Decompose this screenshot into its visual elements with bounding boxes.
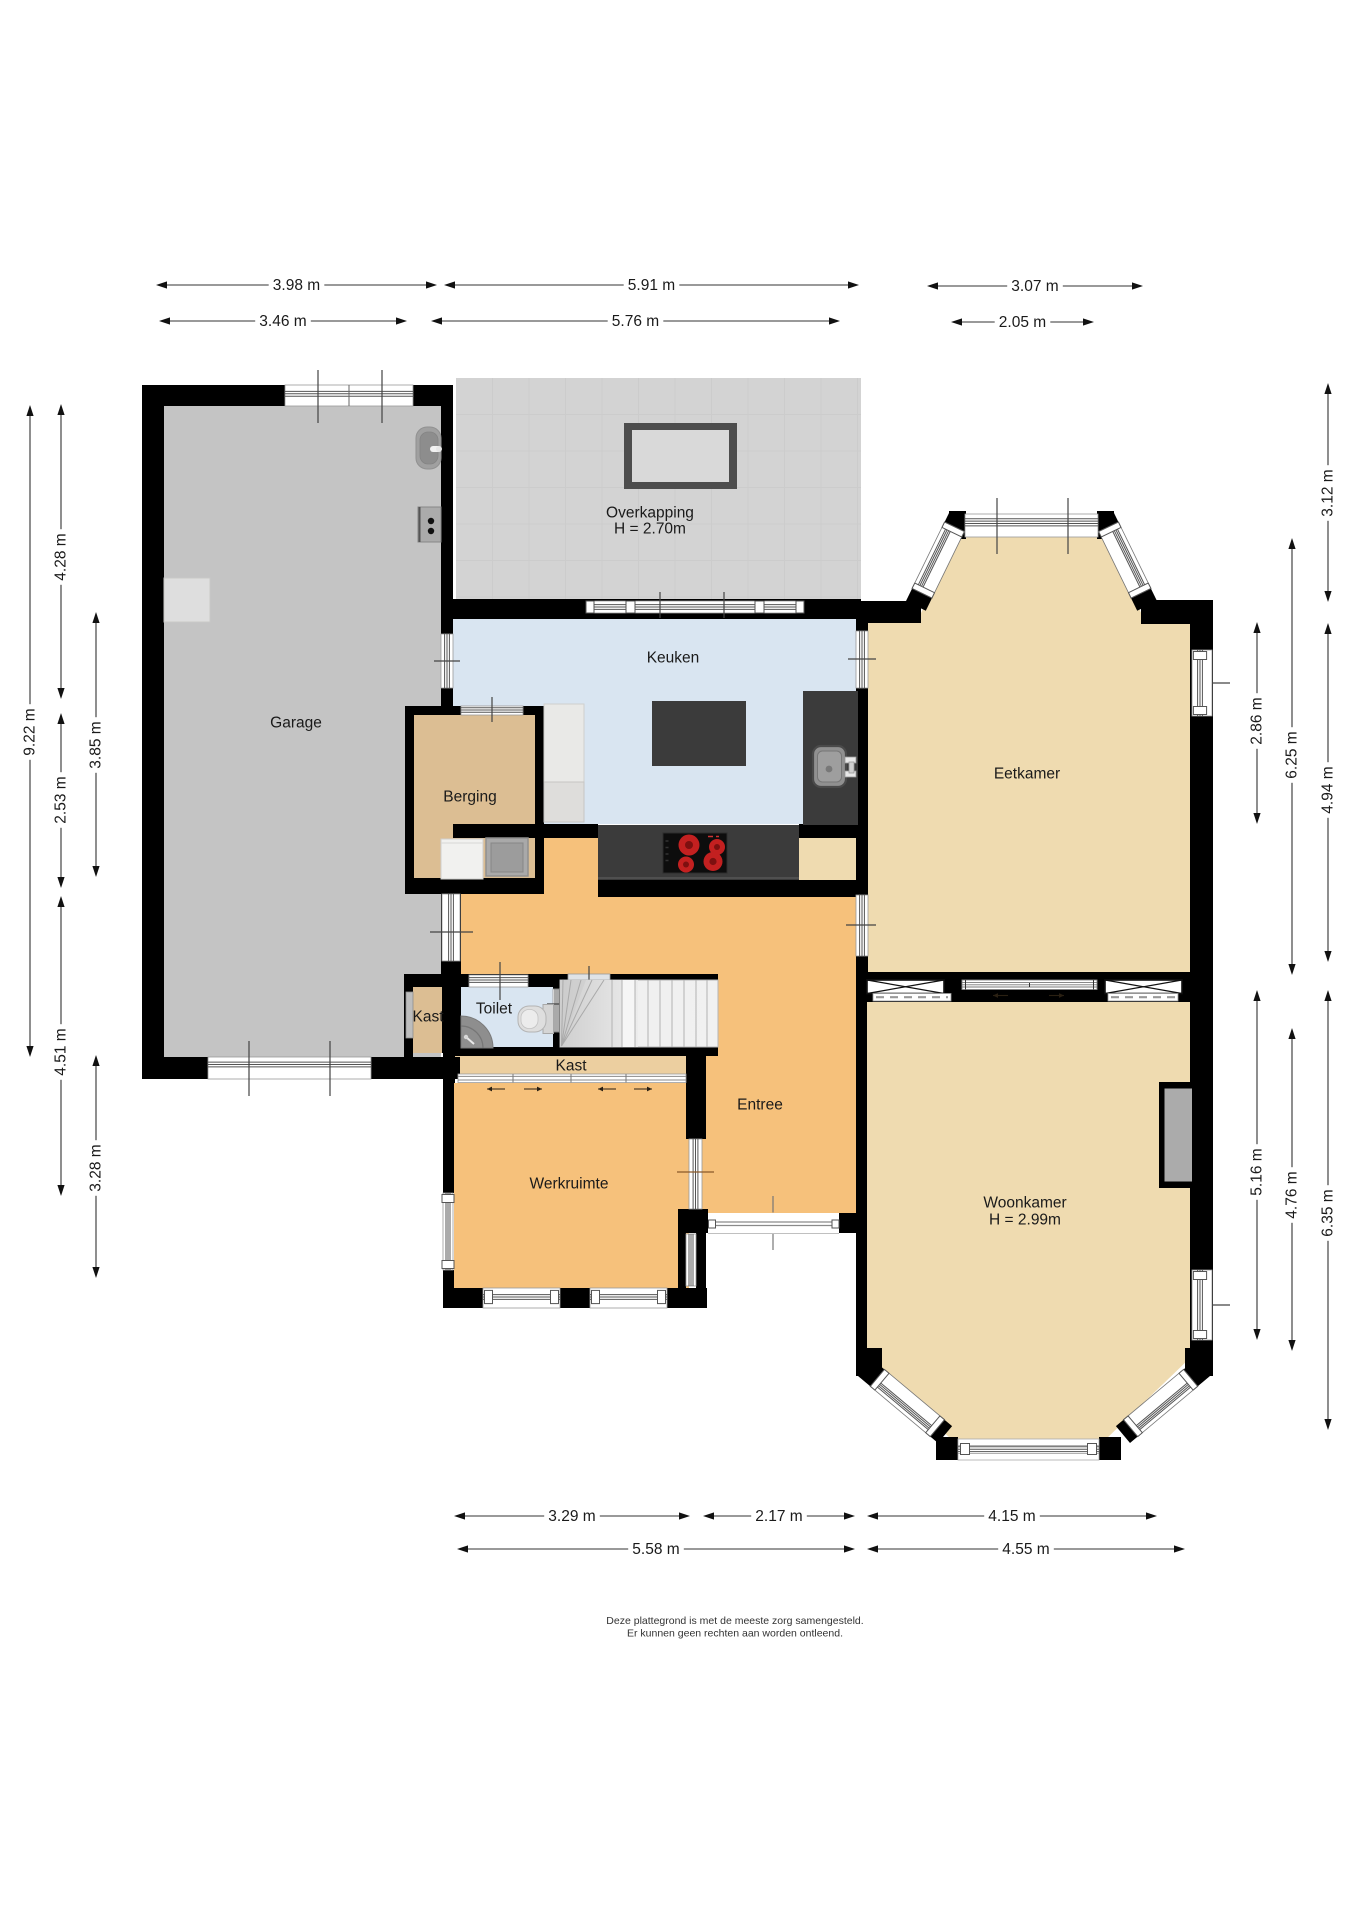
svg-text:4.76 m: 4.76 m	[1284, 1171, 1301, 1218]
svg-text:4.28 m: 4.28 m	[53, 533, 70, 580]
svg-text:Deze plattegrond is met de mee: Deze plattegrond is met de meeste zorg s…	[606, 1615, 863, 1627]
svg-text:5.58 m: 5.58 m	[632, 1541, 679, 1558]
svg-text:4.94 m: 4.94 m	[1320, 766, 1337, 813]
svg-text:2.86 m: 2.86 m	[1249, 697, 1266, 744]
svg-text:3.12 m: 3.12 m	[1320, 469, 1337, 516]
svg-text:Berging: Berging	[443, 789, 496, 806]
svg-text:4.51 m: 4.51 m	[53, 1028, 70, 1075]
svg-text:6.35 m: 6.35 m	[1320, 1189, 1337, 1236]
svg-text:Garage: Garage	[270, 715, 322, 732]
svg-text:Werkruimte: Werkruimte	[530, 1176, 609, 1193]
svg-text:Eetkamer: Eetkamer	[994, 766, 1060, 783]
svg-text:Kast: Kast	[412, 1009, 444, 1026]
svg-text:Woonkamer: Woonkamer	[983, 1195, 1066, 1212]
svg-text:4.55 m: 4.55 m	[1002, 1541, 1049, 1558]
svg-text:3.46 m: 3.46 m	[259, 313, 306, 330]
svg-text:Overkapping: Overkapping	[606, 505, 694, 522]
svg-text:3.07 m: 3.07 m	[1011, 278, 1058, 295]
svg-text:6.25 m: 6.25 m	[1284, 731, 1301, 778]
svg-text:3.85 m: 3.85 m	[88, 721, 105, 768]
svg-text:Keuken: Keuken	[647, 650, 700, 667]
svg-text:5.76 m: 5.76 m	[612, 313, 659, 330]
svg-text:2.05 m: 2.05 m	[999, 314, 1046, 331]
svg-text:Kast: Kast	[555, 1058, 587, 1075]
svg-text:H = 2.99m: H = 2.99m	[989, 1212, 1061, 1229]
svg-text:2.53 m: 2.53 m	[53, 776, 70, 823]
svg-text:5.16 m: 5.16 m	[1249, 1148, 1266, 1195]
svg-text:H = 2.70m: H = 2.70m	[614, 521, 686, 538]
svg-text:3.28 m: 3.28 m	[88, 1144, 105, 1191]
svg-text:5.91 m: 5.91 m	[628, 277, 675, 294]
svg-text:Entree: Entree	[737, 1097, 783, 1114]
svg-text:3.98 m: 3.98 m	[273, 277, 320, 294]
svg-text:Er kunnen geen rechten aan wor: Er kunnen geen rechten aan worden ontlee…	[627, 1628, 843, 1640]
svg-text:Toilet: Toilet	[476, 1001, 513, 1018]
svg-text:3.29 m: 3.29 m	[548, 1508, 595, 1525]
svg-text:4.15 m: 4.15 m	[988, 1508, 1035, 1525]
svg-text:9.22 m: 9.22 m	[22, 708, 39, 755]
svg-text:2.17 m: 2.17 m	[755, 1508, 802, 1525]
